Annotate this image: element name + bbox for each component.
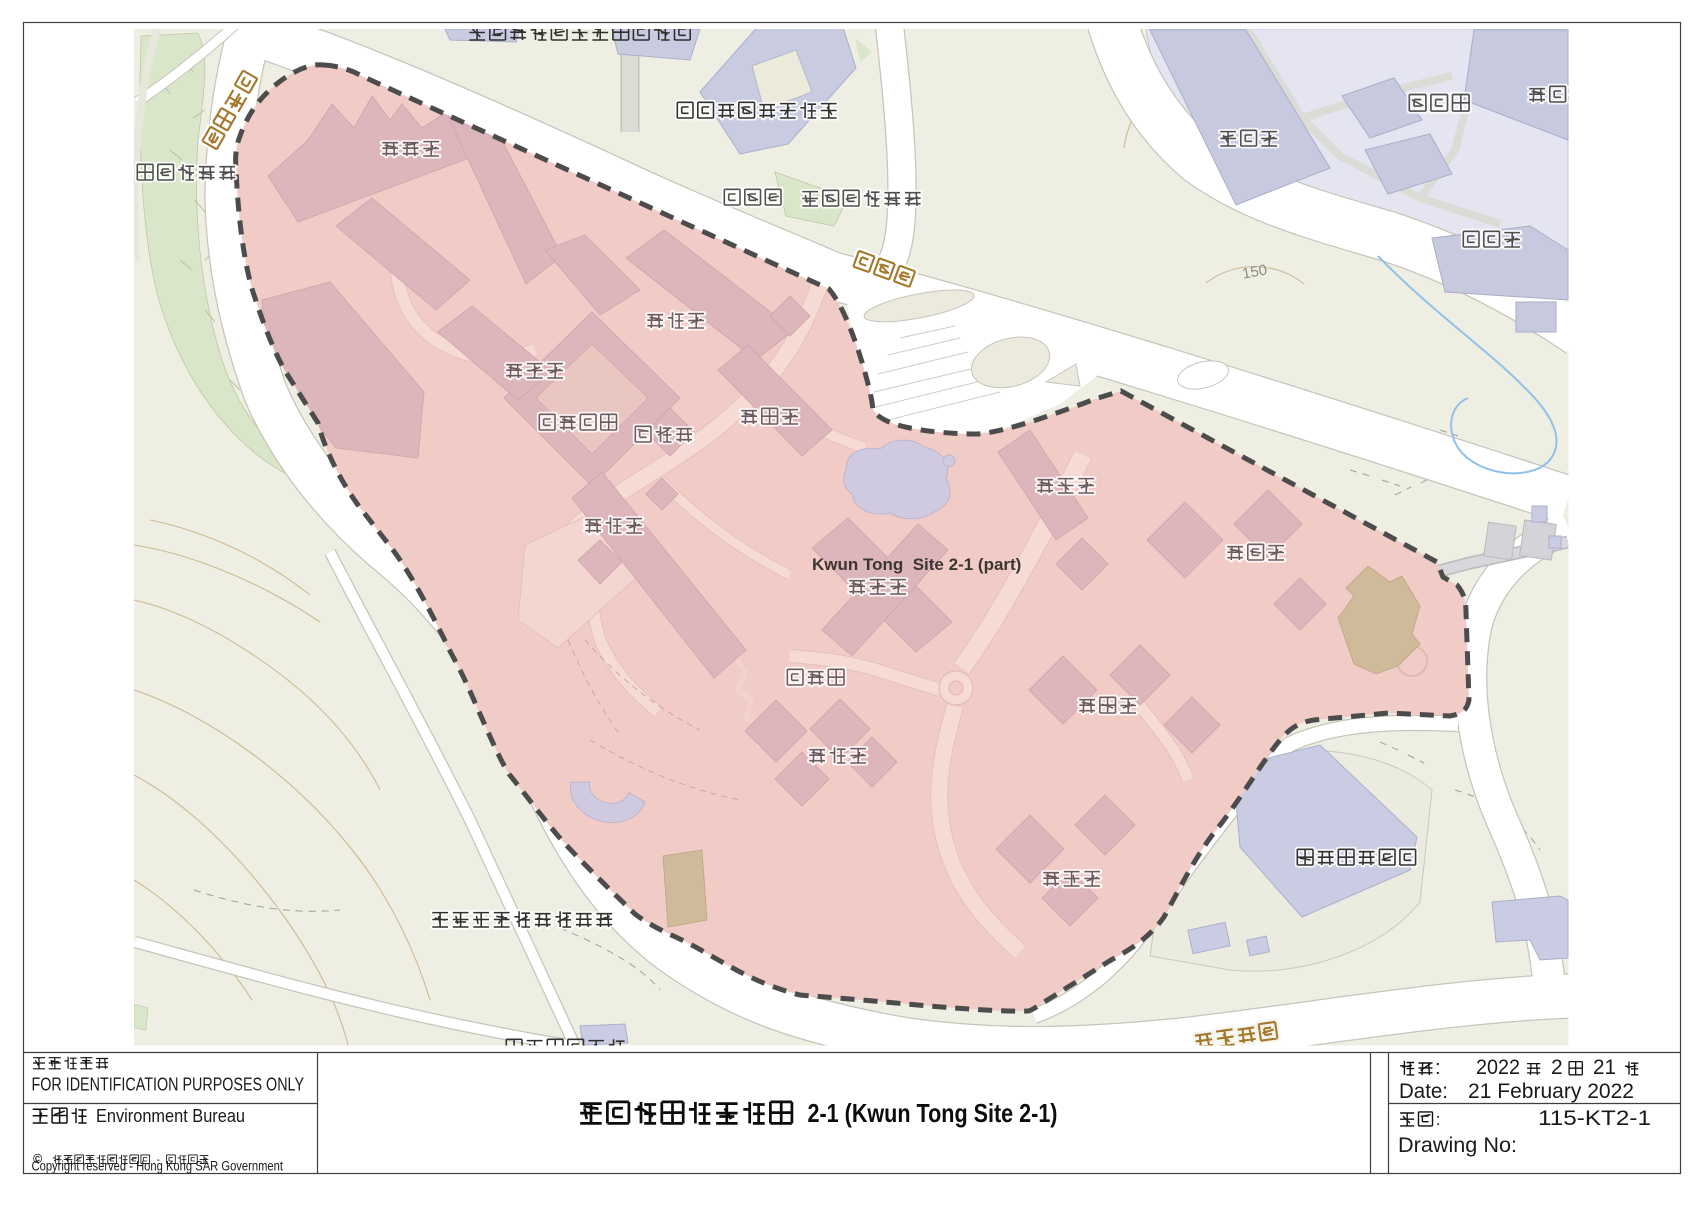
svg-text:Copyright reserved - Hong Kong: Copyright reserved - Hong Kong SAR Gover… — [32, 1159, 284, 1174]
svg-text:2-1 (Kwun Tong Site 2-1): 2-1 (Kwun Tong Site 2-1) — [808, 1098, 1058, 1128]
svg-text:2: 2 — [1551, 1056, 1563, 1079]
svg-text:Date:: Date: — [1399, 1080, 1448, 1103]
svg-text:2022: 2022 — [1476, 1056, 1520, 1079]
svg-text:FOR IDENTIFICATION PURPOSES ON: FOR IDENTIFICATION PURPOSES ONLY — [32, 1075, 305, 1095]
svg-text:21: 21 — [1593, 1056, 1616, 1079]
svg-text:115-KT2-1: 115-KT2-1 — [1538, 1107, 1651, 1130]
svg-text::: : — [1436, 1110, 1441, 1129]
svg-text:Environment Bureau: Environment Bureau — [96, 1105, 245, 1126]
svg-text:21 February 2022: 21 February 2022 — [1468, 1080, 1634, 1103]
svg-text::: : — [1435, 1057, 1441, 1079]
svg-text:Drawing No:: Drawing No: — [1398, 1134, 1517, 1157]
svg-text:Kwun Tong Site 2-1 (part): Kwun Tong Site 2-1 (part) — [812, 555, 1021, 574]
